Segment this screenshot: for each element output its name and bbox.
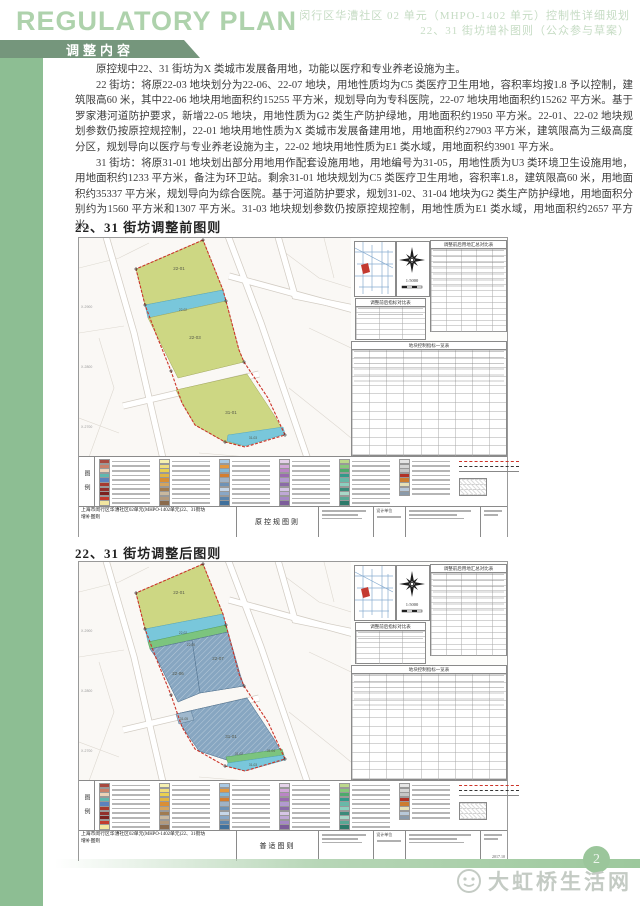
legend-entry-label: [172, 826, 210, 828]
legend-entry-label: [352, 826, 390, 828]
parcel-label: 22-01: [173, 266, 185, 271]
fineprint: [409, 838, 457, 840]
design-unit-cell: 设计单位: [374, 507, 406, 537]
fineprint: [484, 514, 498, 516]
legend-entry-label: [292, 479, 330, 481]
legend-entry-label: [352, 461, 390, 463]
fineprint: [409, 834, 471, 836]
legend-entry-label: [292, 484, 330, 486]
legend-entry-label: [232, 470, 270, 472]
legend-entry-label: [292, 488, 330, 490]
legend-entry-label: [352, 817, 390, 819]
legend-entry-label: [232, 465, 270, 467]
document-title-line1: 闵行区华漕社区 02 单元（MHPO-1402 单元）控制性详细规划: [299, 9, 630, 24]
legend-entry-label: [292, 799, 330, 801]
legend-entry-label: [112, 498, 150, 500]
grid-coordinate: X-2800: [81, 689, 92, 693]
legend-entry-label: [232, 794, 270, 796]
legend-entry: [399, 816, 455, 819]
legend-entry-label: [112, 822, 150, 824]
fineprint: [322, 834, 366, 836]
legend-color-chip: [99, 500, 110, 505]
legend-entry: [339, 825, 395, 828]
legend-entry-label: [232, 502, 270, 504]
titleblock-project: 上海市闵行区华漕社区02单元(MHPO-1402单元)22、31街坊 增补图则: [79, 507, 237, 537]
legend-entry-label: [172, 789, 210, 791]
inset-highlight-parcel: [361, 587, 370, 598]
legend-entry-label: [352, 803, 390, 805]
legend-entry-label: [412, 817, 450, 819]
legend-entry-label: [172, 822, 210, 824]
legend-entry-label: [412, 488, 450, 490]
inset-highlight-parcel: [361, 263, 370, 274]
parcel-label: 31-03: [249, 763, 257, 767]
legend-column: [219, 460, 275, 504]
map-sheet-before: 22-01 22-02 22-03 31-01 31-03 X-2900 X-2…: [78, 237, 508, 537]
document-page: REGULATORY PLAN 闵行区华漕社区 02 单元（MHPO-1402 …: [0, 0, 640, 906]
legend-entry-label: [412, 470, 450, 472]
legend-line-styles: [457, 781, 521, 830]
fineprint: [484, 838, 498, 840]
legend-entry-label: [292, 493, 330, 495]
titleblock: 上海市闵行区华漕社区02单元(MHPO-1402单元)22、31街坊 增补图则 …: [79, 830, 507, 861]
legend-entry-label: [352, 794, 390, 796]
location-inset-map: [354, 241, 396, 297]
legend-entry-label: [112, 785, 150, 787]
legend-entry-label: [352, 470, 390, 472]
table-title: 调整前后指标对比表: [356, 299, 425, 307]
legend-entry-label: [412, 493, 450, 495]
legend-entry-label: [112, 488, 150, 490]
table-fineprint: [354, 351, 504, 383]
legend-entry: [219, 825, 275, 828]
parcel-label: 31-01: [225, 734, 237, 739]
map-canvas-after: 22-01 22-02 22-05 22-06 22-07 31-01 31-0…: [79, 562, 351, 781]
fineprint: [484, 510, 502, 512]
legend-entry-label: [112, 812, 150, 814]
sheet-type-label: 原控规图则: [237, 507, 318, 537]
legend-entry-label: [172, 488, 210, 490]
parcel-label: 22-06: [172, 671, 184, 676]
legend-swatches: [95, 457, 457, 506]
table-fineprint: [433, 574, 504, 611]
legend-entry-label: [292, 794, 330, 796]
grid-coordinate: X-2800: [81, 365, 92, 369]
legend-entry-label: [112, 808, 150, 810]
legend-entry-label: [172, 475, 210, 477]
legend-color-chip: [339, 824, 350, 829]
fineprint: [484, 834, 502, 836]
legend-entry-label: [112, 461, 150, 463]
legend-entry-label: [412, 785, 450, 787]
legend-entry-label: [292, 475, 330, 477]
parcel-label: 31-03: [249, 436, 257, 440]
solid-line-sample: [459, 471, 519, 472]
paragraph-block22: 22 街坊：将原22-03 地块划分为22-06、22-07 地块，用地性质均为…: [75, 78, 633, 156]
legend-entry-label: [412, 465, 450, 467]
legend-entry: [99, 501, 155, 504]
before-map-drawing: 22-01 22-02 22-03 31-01 31-03 X-2900 X-2…: [79, 238, 351, 457]
grid-coordinate: X-2900: [81, 305, 92, 309]
legend-entry-label: [292, 785, 330, 787]
titleblock-project-line2: 增补图则: [81, 839, 234, 846]
legend-entry-label: [352, 789, 390, 791]
legend-entry-label: [172, 799, 210, 801]
parcel-label: 22-05: [187, 643, 195, 647]
legend-entry-label: [292, 822, 330, 824]
landuse-summary-table: 调整前后用地汇总对比表: [430, 564, 507, 656]
legend-entry-label: [292, 470, 330, 472]
hatch-legend-box: [459, 478, 487, 496]
adjustment-text: 原控规中22、31 街坊为X 类城市发展备用地，功能以医疗和专业养老设施为主。 …: [75, 62, 633, 234]
legend-entry-label: [172, 498, 210, 500]
watermark: 大虹桥生活网: [456, 866, 632, 896]
parcel-label: 31-01: [225, 410, 237, 415]
table-grid: [352, 350, 506, 456]
legend-entry-label: [412, 484, 450, 486]
legend-entry-label: [352, 479, 390, 481]
legend-entry-label: [232, 817, 270, 819]
legend-entry-label: [172, 794, 210, 796]
indicator-table: 调整前后指标对比表: [355, 298, 426, 340]
titleblock-notes: [319, 507, 375, 537]
legend-entry-label: [112, 475, 150, 477]
legend-entry-label: [232, 822, 270, 824]
legend-entry-label: [412, 789, 450, 791]
legend-column: [399, 460, 455, 504]
fineprint: [409, 514, 457, 516]
legend-entry-label: [172, 479, 210, 481]
parcel-label: 31-02: [235, 752, 243, 756]
table-fineprint: [433, 250, 504, 287]
legend-entry-label: [412, 799, 450, 801]
legend-entry-label: [172, 484, 210, 486]
table-grid: [431, 573, 506, 656]
legend-entry-label: [112, 803, 150, 805]
watermark-logo-icon: [456, 868, 482, 894]
map-sheet-after: 22-01 22-02 22-05 22-06 22-07 31-01 31-0…: [78, 561, 508, 861]
legend-column: [99, 784, 155, 828]
heading-after-map: 22、31 街坊调整后图则: [75, 543, 221, 562]
legend-entry: [159, 501, 215, 504]
after-map-drawing: 22-01 22-02 22-05 22-06 22-07 31-01 31-0…: [79, 562, 351, 781]
parcel-label: 22-07: [212, 656, 224, 661]
table-fineprint: [354, 675, 504, 707]
legend-entry-label: [412, 475, 450, 477]
table-title: 调整前后指标对比表: [356, 623, 425, 631]
left-green-band: [0, 58, 43, 906]
parcel-control-table: 地块控制指标一览表: [351, 341, 507, 456]
sign-cell: 2017.10: [481, 831, 507, 861]
indicator-table: 调整前后指标对比表: [355, 622, 426, 664]
section-banner-label: 调整内容: [66, 40, 134, 59]
legend-entry-label: [292, 812, 330, 814]
legend-entry-label: [172, 803, 210, 805]
parcel-label: 22-02: [179, 631, 187, 635]
legend-column: [279, 784, 335, 828]
legend-column: [279, 460, 335, 504]
section-banner: 调整内容: [0, 40, 200, 58]
dashed-line-sample: [459, 790, 519, 791]
legend-entry-label: [172, 502, 210, 504]
legend-entry-label: [412, 479, 450, 481]
legend-entry-label: [232, 808, 270, 810]
table-title: 地块控制指标一览表: [352, 342, 506, 350]
watermark-text: 大虹桥生活网: [488, 866, 632, 896]
legend-entry-label: [112, 465, 150, 467]
legend-entry: [219, 501, 275, 504]
parcel-control-table: 地块控制指标一览表: [351, 665, 507, 780]
legend-entry-label: [232, 493, 270, 495]
legend-entry-label: [352, 502, 390, 504]
solid-line-sample: [459, 795, 519, 796]
legend-entry-label: [112, 794, 150, 796]
legend-column: [339, 784, 395, 828]
legend-entry-label: [232, 803, 270, 805]
landuse-summary-table: 调整前后用地汇总对比表: [430, 240, 507, 332]
design-unit-cell: 设计单位: [374, 831, 406, 861]
legend-column: [399, 784, 455, 828]
table-grid: [356, 307, 425, 340]
boundary-line-sample: [459, 461, 519, 462]
sheet-type-label: 普适图则: [237, 831, 318, 861]
parcel-label: 22-01: [173, 590, 185, 595]
legend-entry-label: [232, 461, 270, 463]
heading-before-map: 22、31 街坊调整前图则: [75, 217, 221, 236]
legend-entry-label: [172, 808, 210, 810]
legend-color-chip: [279, 500, 290, 505]
table-fineprint: [358, 308, 423, 318]
legend-entry-label: [232, 498, 270, 500]
north-arrow-icon: 1:5000: [397, 566, 427, 618]
legend-entry-label: [112, 479, 150, 481]
legend-entry-label: [352, 822, 390, 824]
table-grid: [356, 631, 425, 664]
legend-entry-label: [232, 812, 270, 814]
legend-color-chip: [399, 491, 410, 496]
legend-entry-label: [412, 461, 450, 463]
legend-entry-label: [112, 799, 150, 801]
legend-entry-label: [412, 803, 450, 805]
legend-entry-label: [352, 785, 390, 787]
location-inset-map: [354, 565, 396, 621]
grid-coordinate: X-2700: [81, 749, 92, 753]
legend-entry-label: [352, 808, 390, 810]
legend-color-chip: [279, 824, 290, 829]
grid-coordinate: X-2900: [81, 629, 92, 633]
legend-band: 图例: [79, 780, 507, 830]
company-cell: [406, 831, 481, 861]
legend-entry-label: [352, 493, 390, 495]
table-fineprint: [358, 632, 423, 642]
legend-column: [159, 784, 215, 828]
titleblock-notes: [319, 831, 375, 861]
legend-title: 图例: [79, 781, 95, 830]
north-arrow-icon: 1:5000: [397, 242, 427, 294]
legend-entry-label: [412, 794, 450, 796]
legend-entry-label: [112, 502, 150, 504]
legend-entry-label: [112, 789, 150, 791]
legend-entry: [339, 501, 395, 504]
legend-entry: [279, 501, 335, 504]
legend-entry-label: [112, 826, 150, 828]
fineprint: [322, 518, 362, 520]
titleblock-project: 上海市闵行区华漕社区02单元(MHPO-1402单元)22、31街坊 增补图则: [79, 831, 237, 861]
legend-entry-label: [172, 812, 210, 814]
inset-map-drawing: [355, 242, 393, 294]
legend-color-chip: [399, 815, 410, 820]
compass-box: 1:5000: [396, 241, 430, 297]
boundary-line-sample: [459, 785, 519, 786]
legend-entry-label: [232, 475, 270, 477]
legend-entry-label: [112, 470, 150, 472]
table-title: 调整前后用地汇总对比表: [431, 241, 506, 249]
legend-color-chip: [219, 824, 230, 829]
legend-entry-label: [172, 461, 210, 463]
parcel-label: 22-03: [189, 335, 201, 340]
fineprint: [377, 516, 401, 518]
legend-entry-label: [112, 484, 150, 486]
legend-entry-label: [292, 461, 330, 463]
fineprint: [409, 842, 464, 844]
legend-color-chip: [219, 500, 230, 505]
legend-entry-label: [412, 808, 450, 810]
legend-entry-label: [352, 484, 390, 486]
legend-entry-label: [352, 498, 390, 500]
legend-entry-label: [352, 812, 390, 814]
legend-color-chip: [159, 824, 170, 829]
hatch-legend-box: [459, 802, 487, 820]
legend-column: [99, 460, 155, 504]
regulatory-plan-logo: REGULATORY PLAN: [16, 6, 297, 37]
legend-entry-label: [112, 493, 150, 495]
table-grid: [352, 674, 506, 780]
fineprint: [322, 838, 358, 840]
inset-map-drawing: [355, 566, 393, 618]
titleblock: 上海市闵行区华漕社区02单元(MHPO-1402单元)22、31街坊 增补图则 …: [79, 506, 507, 537]
parcel-label: 31-05: [180, 717, 188, 721]
legend-color-chip: [99, 824, 110, 829]
legend-entry: [399, 492, 455, 495]
design-unit-label: 设计单位: [376, 508, 403, 514]
map-scale: 1:5000: [406, 278, 419, 283]
map-canvas-before: 22-01 22-02 22-03 31-01 31-03 X-2900 X-2…: [79, 238, 351, 457]
fineprint: [377, 840, 401, 842]
legend-entry-label: [172, 470, 210, 472]
legend-entry-label: [292, 789, 330, 791]
map-scale: 1:5000: [406, 602, 419, 607]
legend-entry-label: [352, 488, 390, 490]
legend-entry-label: [292, 803, 330, 805]
legend-entry-label: [172, 465, 210, 467]
legend-entry: [99, 825, 155, 828]
dashed-line-sample: [459, 466, 519, 467]
legend-column: [159, 460, 215, 504]
fineprint: [322, 842, 362, 844]
legend-title: 图例: [79, 457, 95, 506]
legend-entry-label: [172, 493, 210, 495]
legend-entry-label: [292, 817, 330, 819]
table-title: 调整前后用地汇总对比表: [431, 565, 506, 573]
table-title: 地块控制指标一览表: [352, 666, 506, 674]
parcel-label: 22-02: [179, 308, 187, 312]
legend-band: 图例: [79, 456, 507, 506]
titleblock-project-line2: 增补图则: [81, 515, 234, 522]
legend-entry-label: [172, 817, 210, 819]
grid-coordinate: X-2700: [81, 425, 92, 429]
legend-entry-label: [232, 785, 270, 787]
legend-color-chip: [339, 500, 350, 505]
legend-entry-label: [292, 502, 330, 504]
legend-entry-label: [232, 789, 270, 791]
fineprint: [409, 518, 464, 520]
legend-entry-label: [292, 808, 330, 810]
legend-entry-label: [352, 465, 390, 467]
fineprint: [322, 514, 358, 516]
legend-entry-label: [292, 498, 330, 500]
legend-column: [219, 784, 275, 828]
fineprint: [409, 510, 471, 512]
sign-cell: [481, 507, 507, 537]
legend-entry-label: [232, 484, 270, 486]
legend-entry-label: [412, 812, 450, 814]
legend-entry-label: [232, 799, 270, 801]
legend-entry-label: [112, 817, 150, 819]
legend-entry-label: [292, 826, 330, 828]
design-unit-label: 设计单位: [376, 832, 403, 838]
legend-line-styles: [457, 457, 521, 506]
legend-column: [339, 460, 395, 504]
compass-box: 1:5000: [396, 565, 430, 621]
legend-entry-label: [292, 465, 330, 467]
paragraph-intro: 原控规中22、31 街坊为X 类城市发展备用地，功能以医疗和专业养老设施为主。: [75, 62, 633, 78]
table-grid: [431, 249, 506, 332]
document-title: 闵行区华漕社区 02 单元（MHPO-1402 单元）控制性详细规划 22、31…: [299, 9, 630, 39]
legend-entry-label: [232, 826, 270, 828]
legend-entry-label: [352, 475, 390, 477]
legend-entry-label: [352, 799, 390, 801]
legend-swatches: [95, 781, 457, 830]
legend-entry: [159, 825, 215, 828]
legend-entry: [279, 825, 335, 828]
legend-entry-label: [232, 488, 270, 490]
parcel-label: 31-04: [267, 749, 275, 753]
document-title-line2: 22、31 街坊增补图则（公众参与草案）: [299, 24, 630, 39]
legend-entry-label: [232, 479, 270, 481]
fineprint: [322, 510, 366, 512]
legend-color-chip: [159, 500, 170, 505]
legend-entry-label: [172, 785, 210, 787]
company-cell: [406, 507, 481, 537]
